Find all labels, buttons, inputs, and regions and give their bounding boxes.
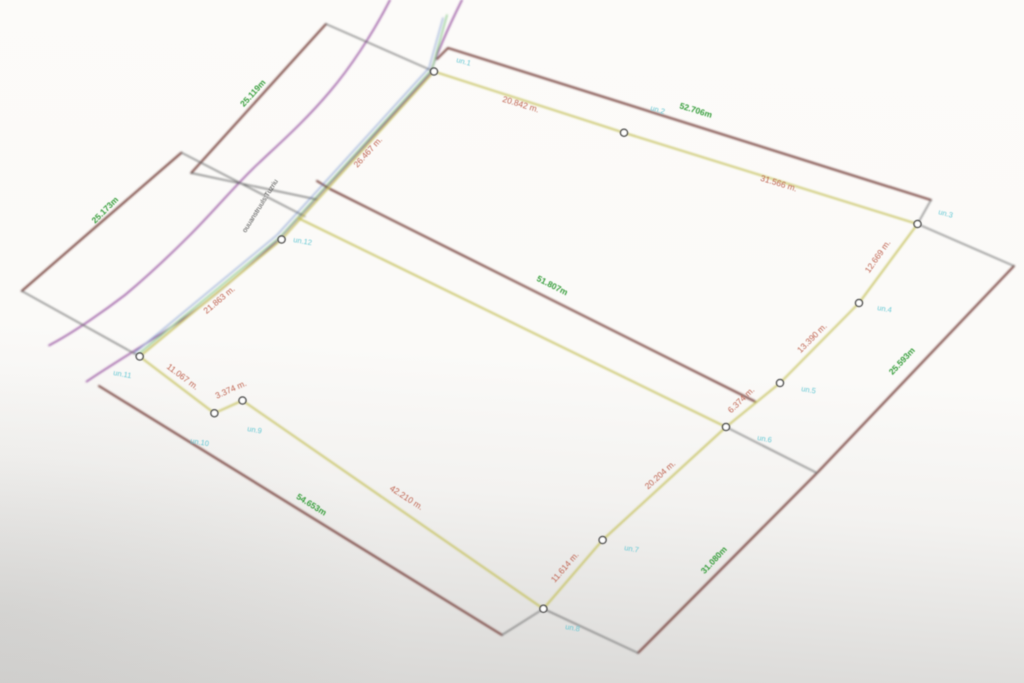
svg-text:un.4: un.4 <box>877 303 893 314</box>
svg-text:54.653m: 54.653m <box>295 491 329 517</box>
svg-text:un.3: un.3 <box>937 207 953 219</box>
svg-text:11.067 m.: 11.067 m. <box>165 361 201 391</box>
svg-text:un.7: un.7 <box>624 543 640 554</box>
svg-text:un.11: un.11 <box>113 368 133 380</box>
svg-text:un.10: un.10 <box>190 436 210 448</box>
svg-text:un.6: un.6 <box>757 433 773 444</box>
svg-text:un.1: un.1 <box>455 55 471 67</box>
svg-text:52.706m: 52.706m <box>678 100 713 120</box>
svg-text:12.669 m.: 12.669 m. <box>863 238 893 275</box>
svg-text:20.842 m.: 20.842 m. <box>501 94 540 115</box>
svg-text:un.8: un.8 <box>565 622 581 633</box>
svg-text:un.5: un.5 <box>801 384 817 395</box>
svg-text:un.9: un.9 <box>247 424 263 435</box>
svg-text:42.210 m.: 42.210 m. <box>388 483 425 512</box>
svg-text:20.204 m.: 20.204 m. <box>643 458 678 491</box>
svg-text:21.863 m.: 21.863 m. <box>201 284 236 316</box>
svg-text:31.566 m.: 31.566 m. <box>759 173 798 194</box>
svg-text:11.614 m.: 11.614 m. <box>549 550 581 585</box>
svg-text:31.080m: 31.080m <box>699 544 730 576</box>
svg-text:un.2: un.2 <box>649 103 666 116</box>
svg-text:un.12: un.12 <box>293 235 313 247</box>
